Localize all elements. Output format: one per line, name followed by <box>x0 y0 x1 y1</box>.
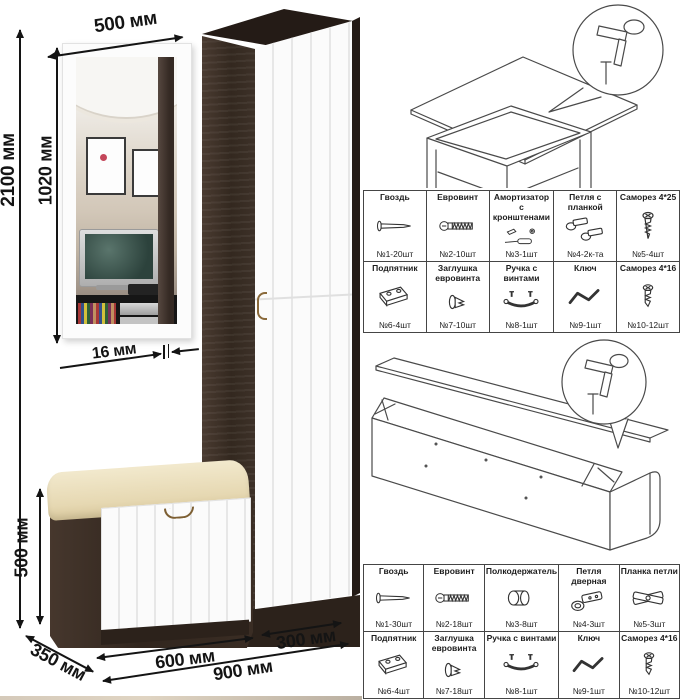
hardware-kit-1: Гвоздь №1-20шт Евровинт №2-10шт Амортиза… <box>363 190 680 333</box>
hinge-plate-icon <box>626 577 672 619</box>
mirror-height-label: 1020 мм <box>36 127 57 215</box>
picture-red-dot <box>100 154 107 161</box>
wood-screw-icon <box>626 644 672 686</box>
furniture-glide-icon <box>371 644 417 686</box>
thickness-arrow-right <box>172 348 199 353</box>
bench-height-arrow <box>39 489 41 624</box>
reflection-tv <box>79 229 159 287</box>
assembly-step-1-diagram <box>375 0 678 188</box>
reflection-cabinet-strip <box>158 57 174 324</box>
confirmat-screw-icon <box>431 577 477 619</box>
reflection-picture-frame <box>86 137 126 195</box>
cabinet-right-edge <box>352 17 360 597</box>
screw-cap-icon <box>435 284 481 320</box>
bench-height-label: 500 мм <box>12 504 33 592</box>
wall-mirror <box>62 43 192 339</box>
shelf-pin-icon <box>498 577 544 619</box>
assembly-step-2-diagram <box>366 336 680 564</box>
wood-screw-icon <box>625 203 671 249</box>
confirmat-screw-icon <box>435 203 481 249</box>
door-hinge-icon <box>566 587 612 619</box>
furniture-assembly-sheet: 500 мм 2100 мм 1020 мм 16 мм 500 мм 350 … <box>0 0 680 700</box>
cabinet-door-rail <box>255 293 352 300</box>
thickness-tick <box>168 344 170 358</box>
photo-edge-strip <box>0 696 362 700</box>
tv-screen <box>85 234 153 279</box>
shoe-bench <box>44 460 256 652</box>
bench-flap-door <box>101 498 251 632</box>
reflection-player <box>120 317 160 324</box>
reflection-books <box>78 303 116 324</box>
handle-icon <box>498 644 544 686</box>
hex-key-icon <box>566 644 612 686</box>
cabinet-door-handle <box>257 292 267 320</box>
mirror-glass <box>76 57 177 324</box>
gas-lift-icon <box>498 222 544 249</box>
nail-icon <box>371 577 417 619</box>
screw-cap-icon <box>431 654 477 686</box>
furniture-glide-icon <box>372 274 418 320</box>
bench-handle <box>164 506 194 519</box>
hinge-with-plate-icon <box>562 213 608 249</box>
total-height-label: 2100 мм <box>0 125 20 215</box>
mirror-width-label: 500 мм <box>93 8 159 39</box>
nail-icon <box>372 203 418 249</box>
wood-screw-icon <box>625 274 671 320</box>
hex-key-icon <box>562 274 608 320</box>
cabinet-door <box>255 19 352 609</box>
thickness-label: 16 мм <box>91 340 137 363</box>
thickness-tick <box>163 345 165 359</box>
reflection-receiver <box>120 303 160 315</box>
hardware-kit-2: Гвоздь №1-30шт Евровинт №2-18шт Полкодер… <box>363 564 680 699</box>
handle-icon <box>498 284 544 320</box>
